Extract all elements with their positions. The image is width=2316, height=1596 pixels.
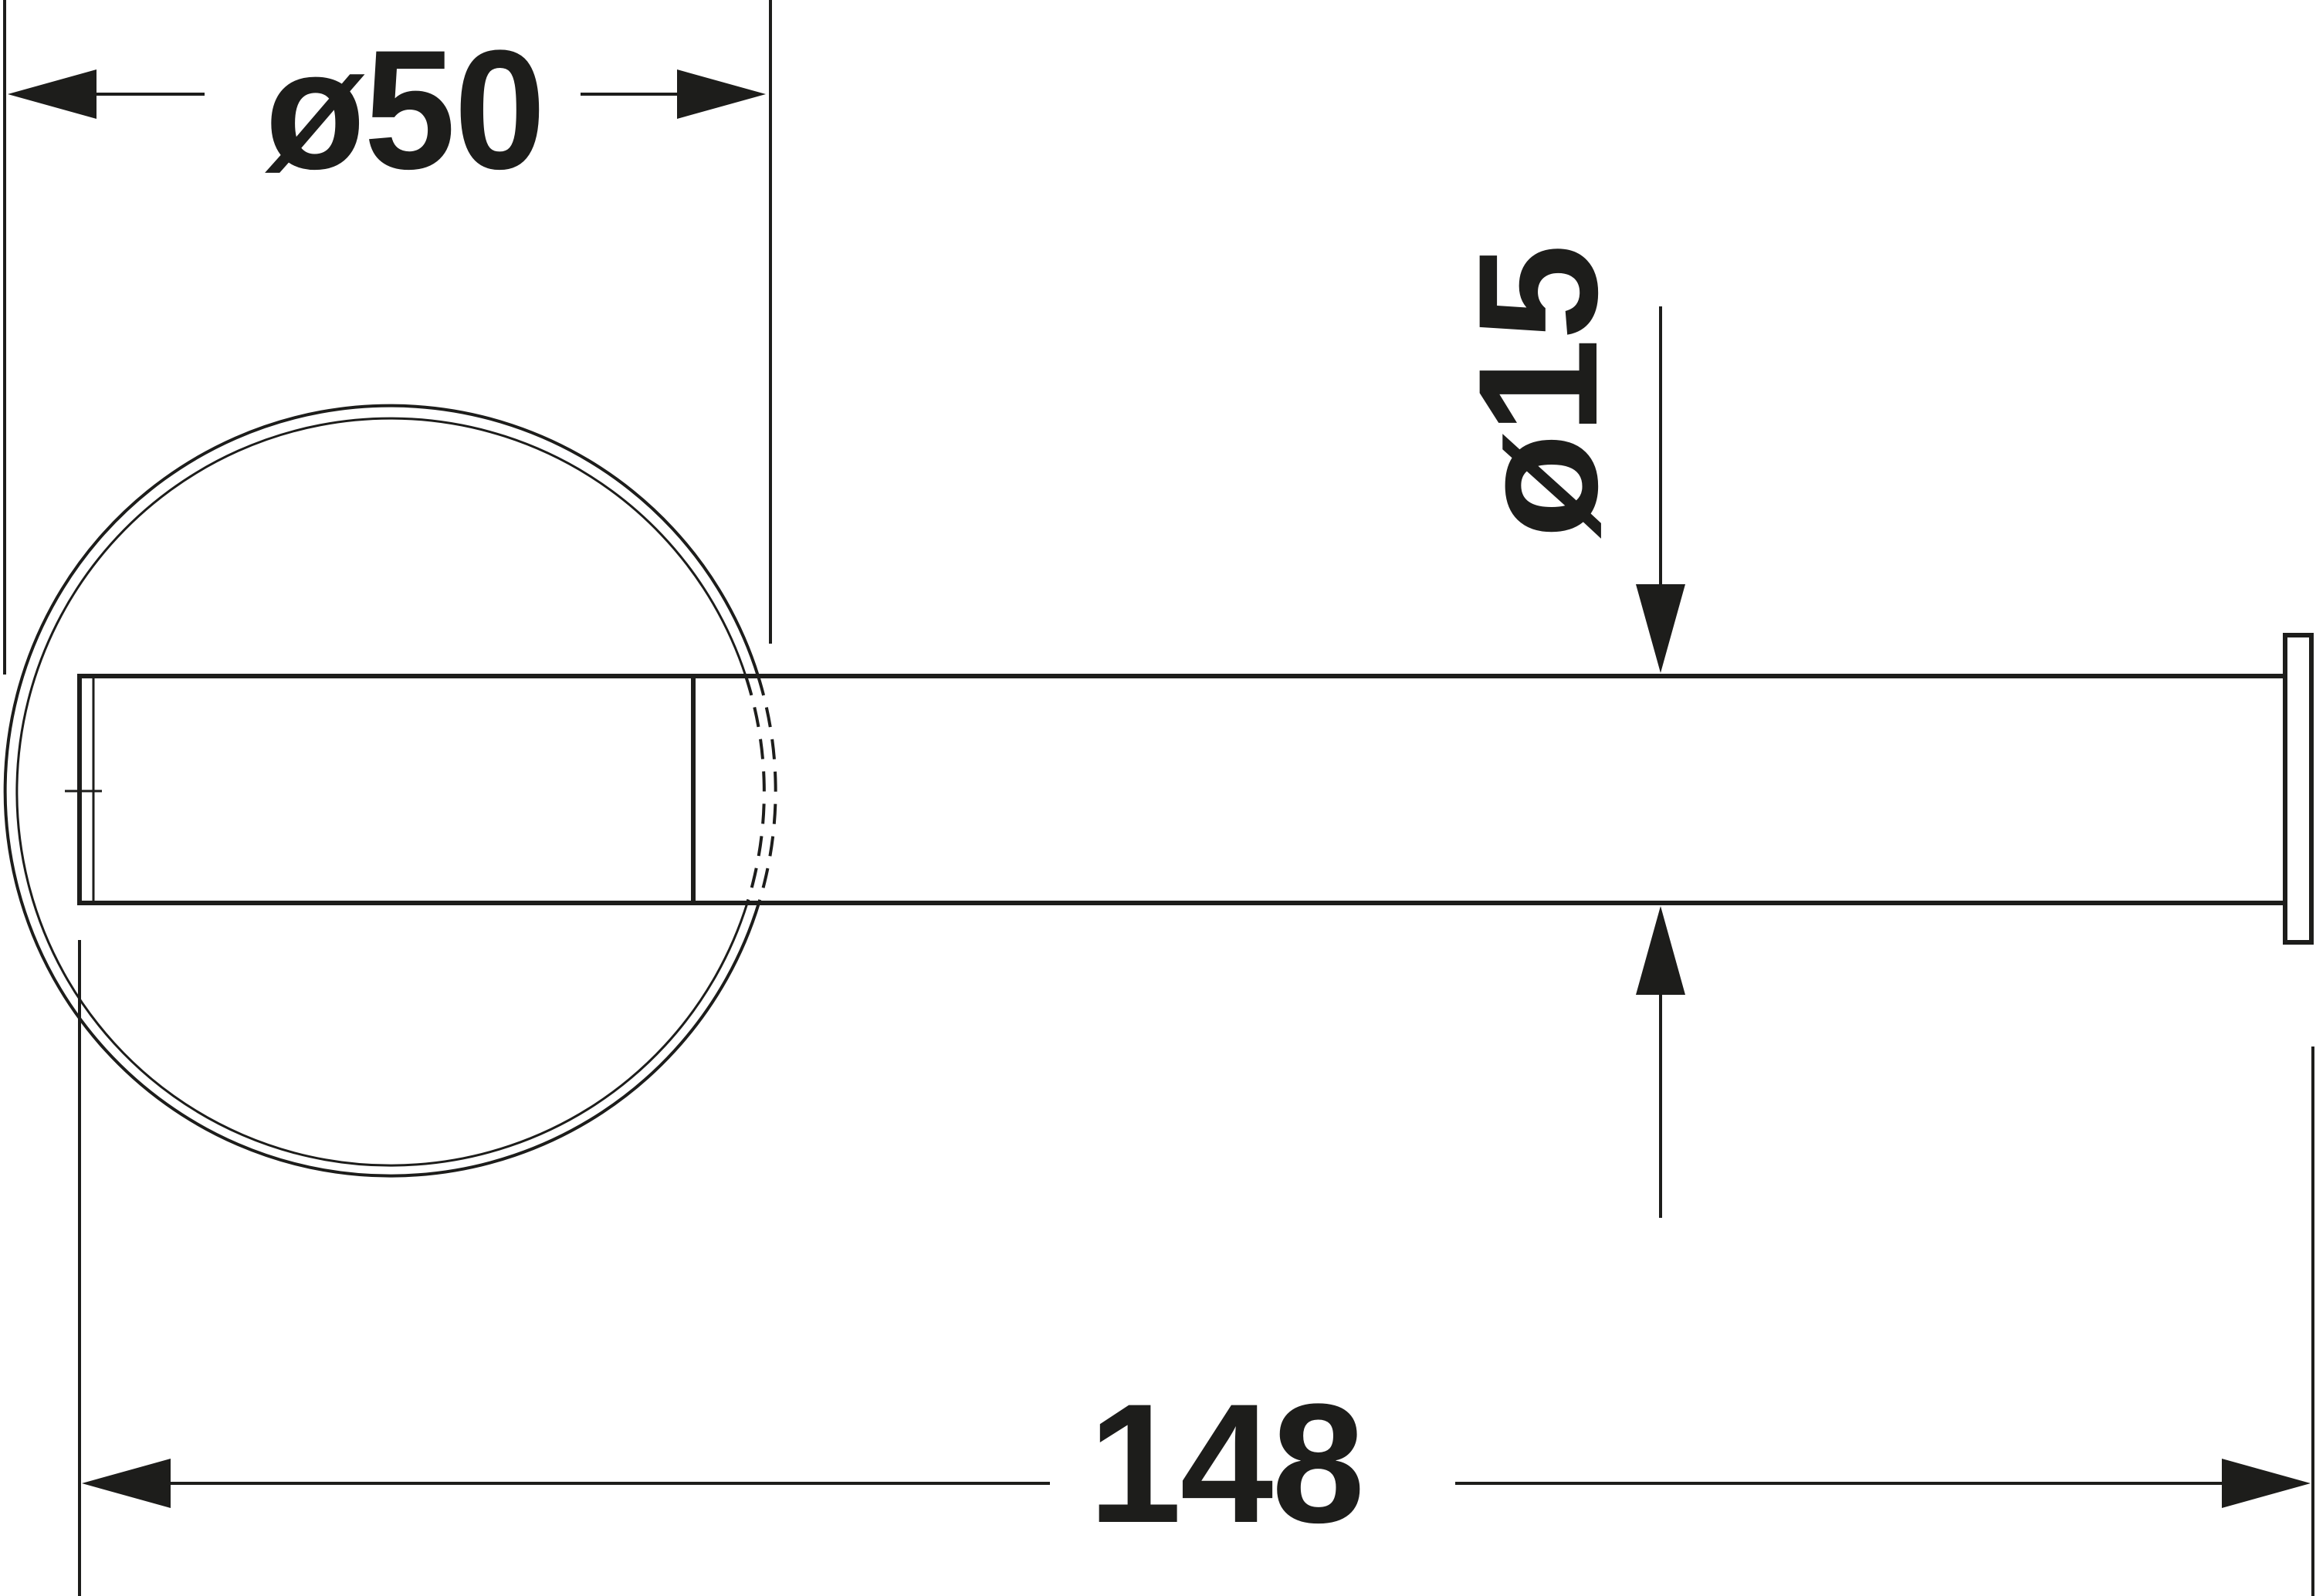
drawing-background [0, 0, 2316, 1596]
dim-label-rod-diameter: ø15 [1443, 245, 1633, 539]
dim-label-length: 148 [1089, 1368, 1363, 1558]
dim-label-plate-diameter: ø50 [265, 15, 544, 205]
technical-drawing-canvas: ø50 ø15 148 [0, 0, 2316, 1596]
rod-end-cap [2285, 635, 2311, 942]
